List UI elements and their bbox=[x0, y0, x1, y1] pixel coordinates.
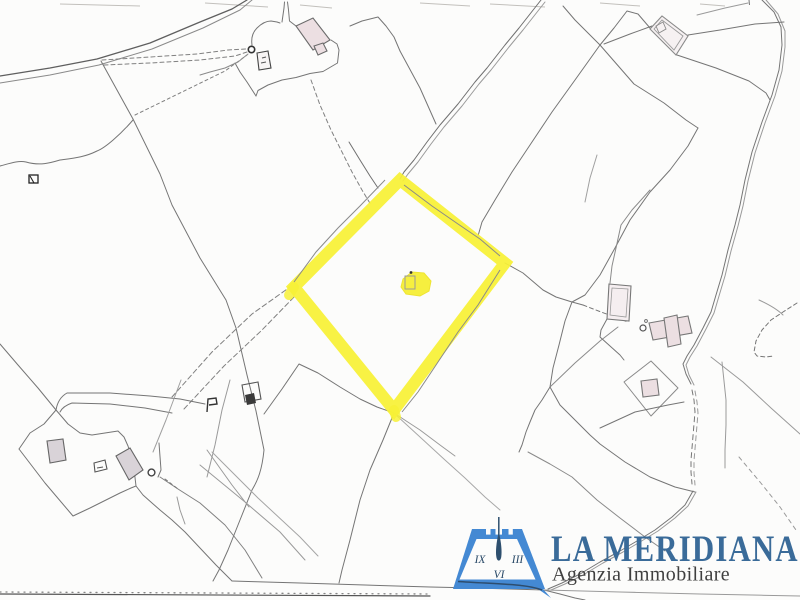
svg-text:Agenzia Immobiliare: Agenzia Immobiliare bbox=[552, 564, 730, 586]
svg-text:VI: VI bbox=[494, 569, 506, 581]
svg-text:III: III bbox=[511, 554, 525, 566]
svg-text:IX: IX bbox=[474, 554, 487, 566]
